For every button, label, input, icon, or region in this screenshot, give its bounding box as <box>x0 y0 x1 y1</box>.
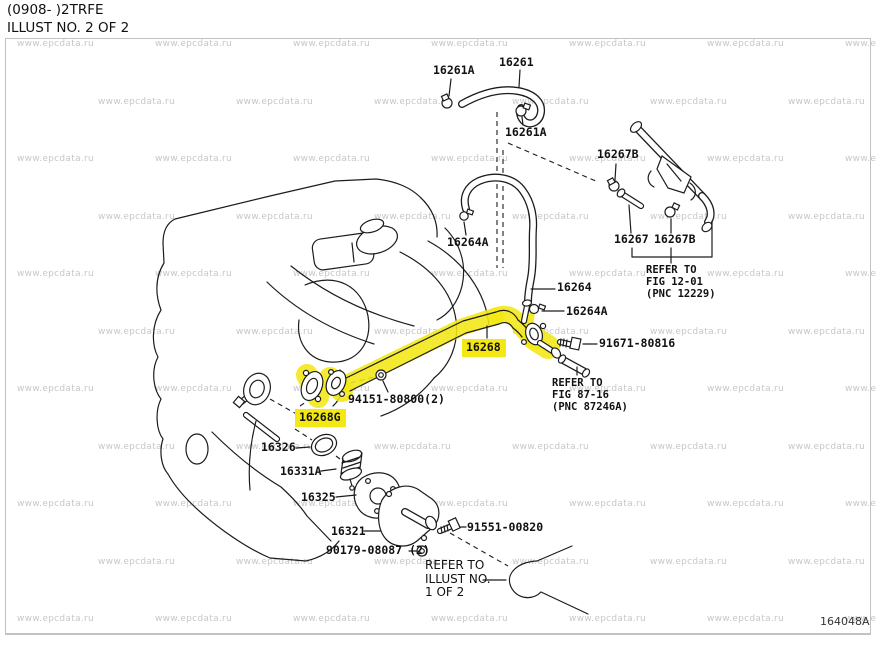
note-line: (PNC 87246A) <box>552 401 628 413</box>
part-label-16268[interactable]: 16268 <box>462 339 506 357</box>
part-label-16331A[interactable]: 16331A <box>280 465 322 478</box>
part-label-16267B-top[interactable]: 16267B <box>597 148 639 161</box>
part-label-16264[interactable]: 16264 <box>557 281 592 294</box>
illust-number: ILLUST NO. 2 OF 2 <box>7 19 129 37</box>
note-fig-12-01: REFER TOFIG 12-01(PNC 12229) <box>646 264 716 300</box>
reference-hose-drawing <box>483 546 588 614</box>
note-line: FIG 87-16 <box>552 389 628 401</box>
part-label-91551-00820[interactable]: 91551-00820 <box>467 521 543 534</box>
diagram-line-art <box>0 0 876 648</box>
page: { "header": { "model_code": "(0908- )2TR… <box>0 0 876 648</box>
part-label-16261A-top[interactable]: 16261A <box>433 64 475 77</box>
oring-16326-drawing <box>296 430 340 459</box>
nut-94151-drawing <box>376 370 388 392</box>
stub-hose-drawing <box>557 354 591 379</box>
page-header: (0908- )2TRFE ILLUST NO. 2 OF 2 <box>7 1 129 37</box>
drawing-code: 164048A <box>820 615 870 628</box>
note-line: ILLUST NO. <box>425 573 491 587</box>
part-label-16325[interactable]: 16325 <box>301 491 336 504</box>
model-code: (0908- )2TRFE <box>7 1 129 19</box>
note-line: REFER TO <box>552 377 628 389</box>
bolt-91551-drawing <box>440 518 466 533</box>
part-label-16261[interactable]: 16261 <box>499 56 534 69</box>
note-line: FIG 12-01 <box>646 276 716 288</box>
note-fig-87-16: REFER TOFIG 87-16(PNC 87246A) <box>552 377 628 413</box>
part-label-16264A-top[interactable]: 16264A <box>447 236 489 249</box>
part-label-16264A-bottom[interactable]: 16264A <box>566 305 608 318</box>
note-line: REFER TO <box>646 264 716 276</box>
note-line: REFER TO <box>425 559 491 573</box>
part-label-16267[interactable]: 16267 <box>614 233 649 246</box>
water-outlet-port-drawing <box>233 370 277 490</box>
note-illust-1-of-2: REFER TOILLUST NO.1 OF 2 <box>425 559 491 600</box>
bolt-91671-drawing <box>560 337 597 350</box>
part-label-16326[interactable]: 16326 <box>261 441 296 454</box>
note-line: (PNC 12229) <box>646 288 716 300</box>
part-label-91671-80816[interactable]: 91671-80816 <box>599 337 675 350</box>
part-label-16268G[interactable]: 16268G <box>295 409 346 427</box>
part-label-16261A-mid[interactable]: 16261A <box>505 126 547 139</box>
part-label-16267B-bottom[interactable]: 16267B <box>654 233 696 246</box>
note-line: 1 OF 2 <box>425 586 491 600</box>
part-label-94151-80800[interactable]: 94151-80800(2) <box>348 393 445 406</box>
part-label-16321[interactable]: 16321 <box>331 525 366 538</box>
part-label-90179-08087[interactable]: 90179-08087 (2) <box>326 544 430 557</box>
hose-16261-drawing <box>441 70 541 125</box>
